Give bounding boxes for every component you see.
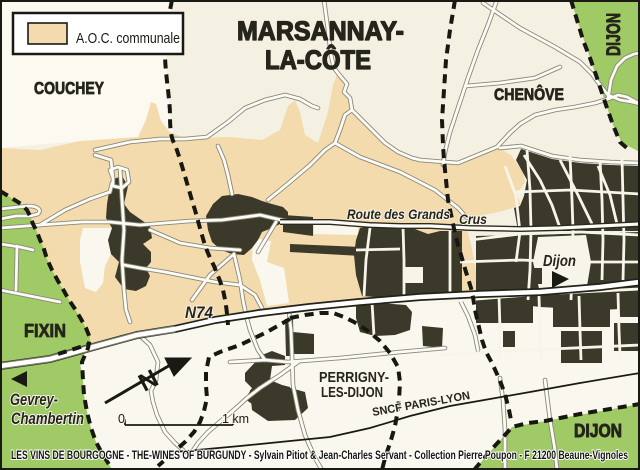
svg-text:COUCHEY: COUCHEY bbox=[34, 78, 104, 98]
svg-text:Route des Grands: Route des Grands bbox=[347, 206, 450, 222]
svg-text:DIJON: DIJON bbox=[603, 13, 625, 56]
svg-text:LES-DIJON: LES-DIJON bbox=[321, 385, 383, 401]
svg-text:0: 0 bbox=[118, 412, 125, 426]
svg-text:MARSANNAY-: MARSANNAY- bbox=[237, 16, 404, 46]
svg-text:A.O.C. communale: A.O.C. communale bbox=[76, 31, 180, 47]
svg-text:DIJON: DIJON bbox=[574, 421, 622, 441]
svg-text:Chambertin: Chambertin bbox=[11, 410, 84, 428]
svg-text:PERRIGNY-: PERRIGNY- bbox=[319, 370, 389, 386]
svg-text:Dijon: Dijon bbox=[543, 253, 576, 270]
svg-text:FIXIN: FIXIN bbox=[24, 321, 66, 341]
svg-text:Crus: Crus bbox=[459, 211, 487, 227]
svg-text:CHENÔVE: CHENÔVE bbox=[494, 85, 564, 104]
svg-text:LES VINS DE BOURGOGNE - THE-WI: LES VINS DE BOURGOGNE - THE-WINES OF BUR… bbox=[11, 448, 628, 462]
svg-text:Gevrey-: Gevrey- bbox=[10, 391, 58, 409]
svg-text:1 km: 1 km bbox=[222, 412, 249, 426]
svg-text:N74: N74 bbox=[185, 303, 213, 322]
svg-text:LA-CÔTE: LA-CÔTE bbox=[265, 45, 371, 75]
